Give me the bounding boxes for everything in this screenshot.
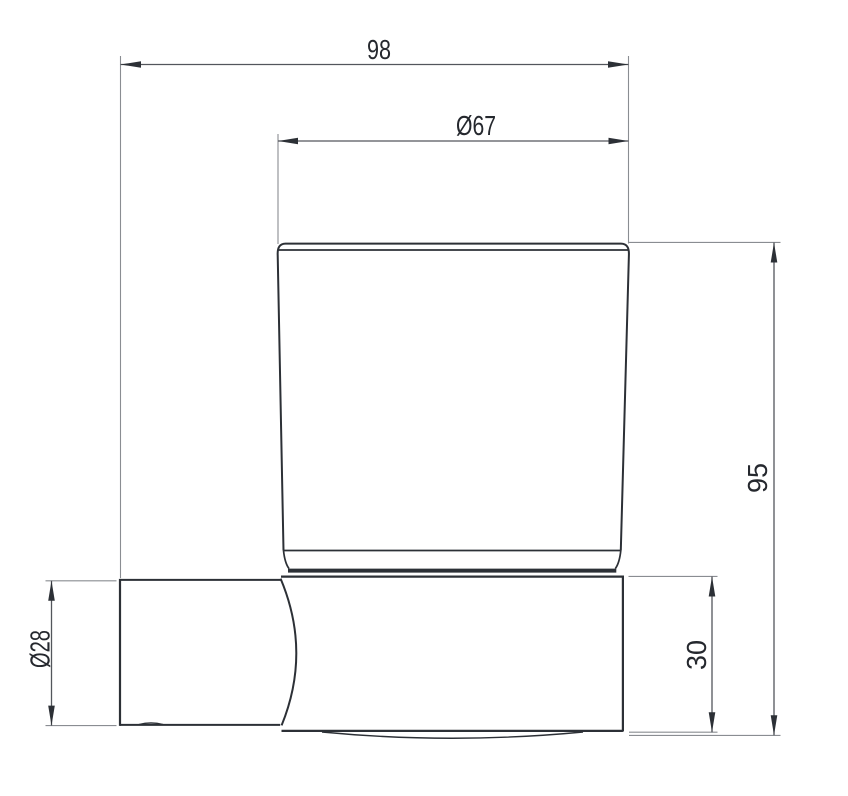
arrowhead-cup-diameter-right [609, 138, 629, 145]
dimension-label-total-depth: 98 [367, 34, 391, 65]
arrowhead-arm-diameter-bottom [48, 706, 55, 726]
holder-ring-bottom-arc [322, 732, 583, 738]
dimension-label-holder-height: 30 [681, 640, 712, 670]
glass-tumbler [278, 244, 629, 571]
dimension-labels: 98 Ø67 95 30 Ø28 [25, 34, 774, 670]
dimension-label-overall-height: 95 [742, 463, 773, 493]
arrowhead-overall-height-bottom [771, 715, 778, 735]
arrowhead-cup-diameter-left [278, 138, 298, 145]
cup-body-outline [278, 244, 629, 551]
extension-lines [46, 56, 781, 735]
tumbler-holder-dimension-drawing: 98 Ø67 95 30 Ø28 [0, 0, 848, 796]
dimension-label-arm-diameter: Ø28 [25, 630, 56, 668]
arrowhead-overall-height-top [771, 243, 778, 263]
wall-holder [120, 576, 623, 739]
technical-drawing-canvas: 98 Ø67 95 30 Ø28 [0, 0, 848, 796]
holder-arm-junction-curve [281, 579, 297, 726]
cup-foot-left-curve [284, 551, 290, 569]
cup-foot-right-curve [615, 551, 621, 569]
arrowhead-total-depth-left [121, 61, 142, 68]
arrowhead-holder-height-top [709, 577, 716, 597]
dimension-label-cup-diameter: Ø67 [456, 110, 496, 141]
dimension-lines [52, 65, 775, 736]
arrowhead-total-depth-right [608, 61, 629, 68]
arrowhead-arm-diameter-top [48, 581, 55, 601]
arrowhead-holder-height-bottom [709, 712, 716, 732]
dimension-arrowheads [48, 61, 777, 735]
